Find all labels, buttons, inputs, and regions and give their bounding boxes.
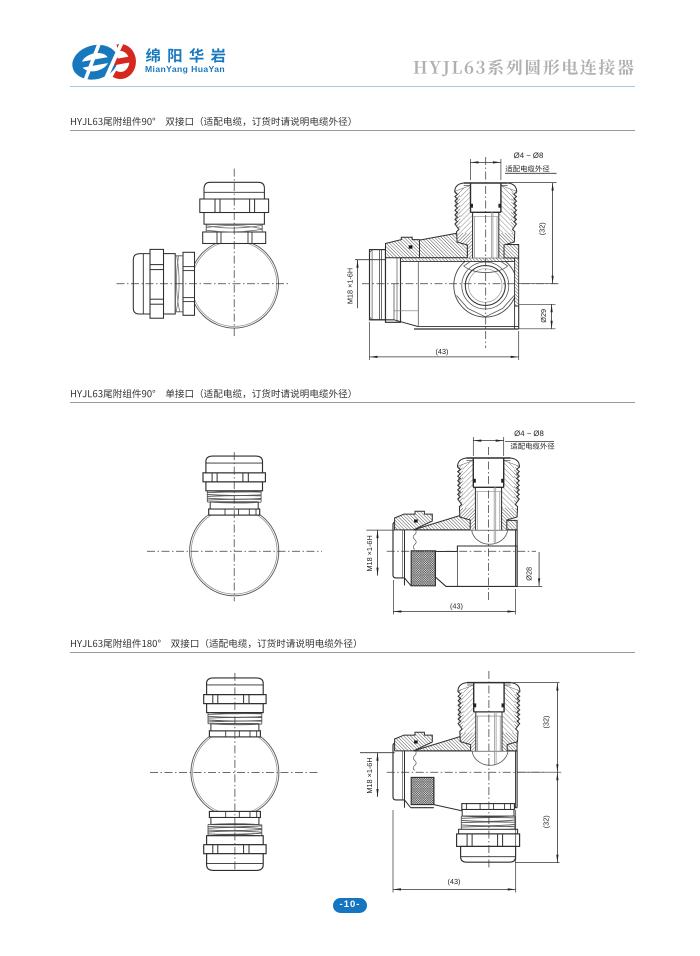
svg-text:M18 ×1-6H: M18 ×1-6H xyxy=(345,268,354,304)
svg-text:M18 ×1-6H: M18 ×1-6H xyxy=(365,535,374,571)
svg-text:(32): (32) xyxy=(538,222,547,235)
svg-text:(43): (43) xyxy=(448,877,461,886)
svg-text:Ø4 ~ Ø8: Ø4 ~ Ø8 xyxy=(514,429,544,438)
svg-text:Ø29: Ø29 xyxy=(539,309,548,323)
svg-text:Ø28: Ø28 xyxy=(525,567,534,581)
svg-text:(43): (43) xyxy=(450,602,463,611)
svg-text:(32): (32) xyxy=(542,815,551,828)
svg-text:(43): (43) xyxy=(436,347,449,356)
svg-text:Ø4 ~ Ø8: Ø4 ~ Ø8 xyxy=(514,151,544,160)
svg-text:M18 ×1-6H: M18 ×1-6H xyxy=(365,757,374,793)
svg-text:(32): (32) xyxy=(542,716,551,729)
